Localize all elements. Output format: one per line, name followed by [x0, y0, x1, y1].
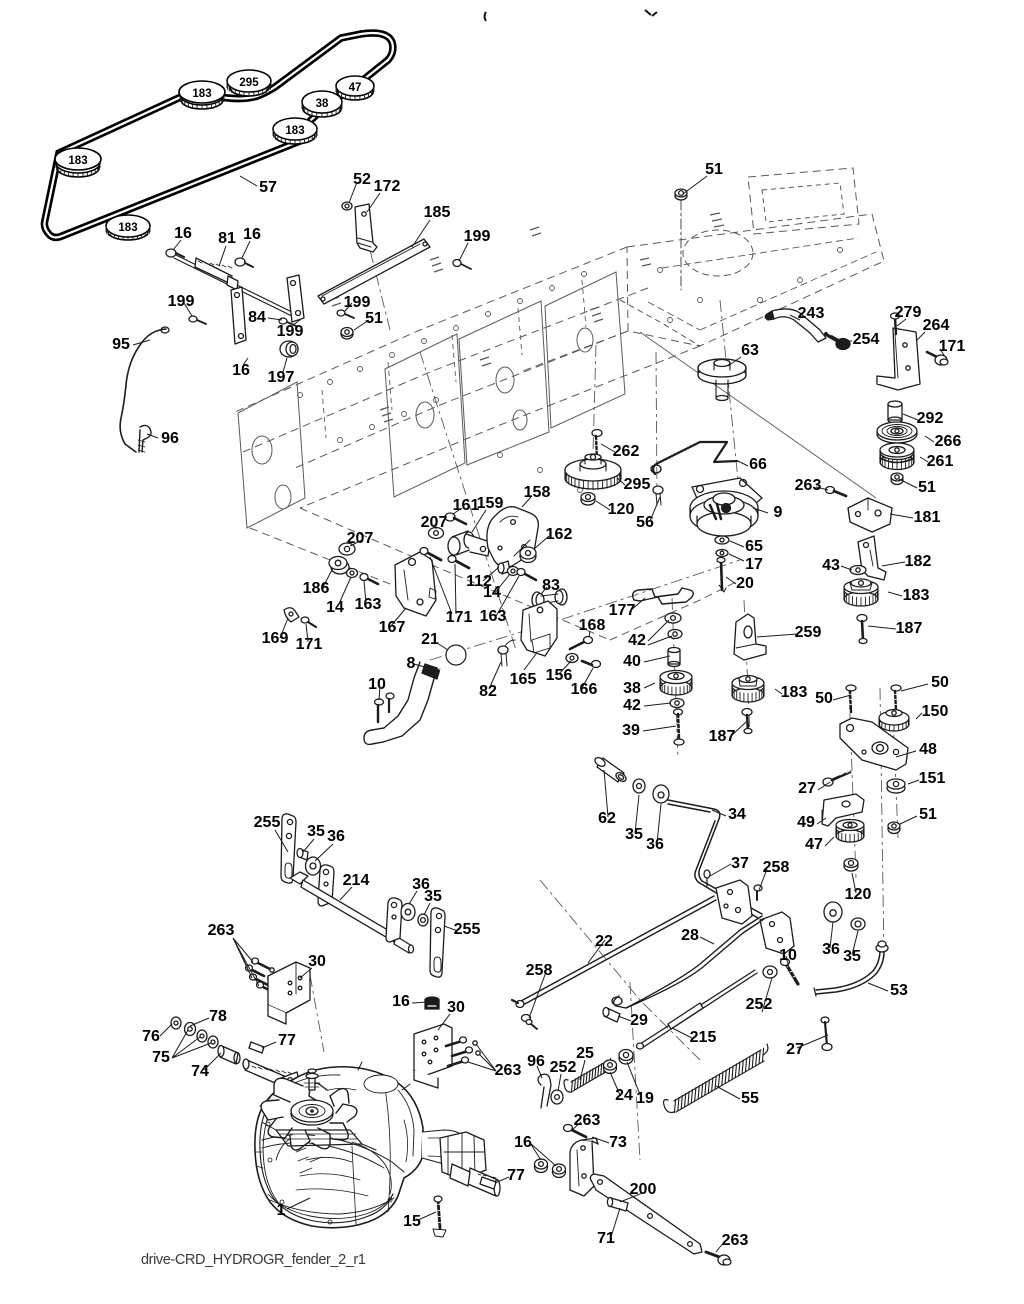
svg-text:261: 261	[927, 453, 954, 470]
svg-text:182: 182	[905, 553, 932, 570]
svg-text:159: 159	[477, 495, 504, 512]
svg-text:162: 162	[546, 526, 573, 543]
svg-text:76: 76	[142, 1028, 160, 1045]
svg-text:185: 185	[424, 204, 451, 221]
svg-text:258: 258	[763, 859, 790, 876]
svg-text:263: 263	[795, 477, 822, 494]
svg-text:151: 151	[919, 770, 946, 787]
svg-text:95: 95	[112, 336, 130, 353]
svg-text:199: 199	[277, 323, 304, 340]
svg-text:38: 38	[623, 680, 641, 697]
svg-text:50: 50	[931, 674, 949, 691]
svg-text:259: 259	[795, 624, 822, 641]
svg-text:171: 171	[446, 609, 473, 626]
svg-text:263: 263	[495, 1062, 522, 1079]
svg-text:215: 215	[690, 1029, 717, 1046]
svg-text:183: 183	[118, 222, 137, 234]
svg-text:51: 51	[365, 310, 383, 327]
svg-text:169: 169	[262, 630, 289, 647]
svg-text:29: 29	[630, 1012, 648, 1029]
svg-text:1: 1	[277, 1202, 286, 1219]
svg-text:50: 50	[815, 690, 833, 707]
svg-text:207: 207	[421, 514, 448, 531]
svg-text:10: 10	[368, 676, 386, 693]
svg-text:156: 156	[546, 667, 573, 684]
svg-text:255: 255	[454, 921, 481, 938]
svg-text:36: 36	[822, 941, 840, 958]
svg-text:163: 163	[480, 608, 507, 625]
svg-text:183: 183	[192, 88, 211, 100]
svg-text:254: 254	[853, 331, 880, 348]
svg-text:40: 40	[623, 653, 641, 670]
svg-text:77: 77	[278, 1032, 296, 1049]
svg-text:82: 82	[479, 683, 497, 700]
svg-text:38: 38	[316, 98, 329, 110]
svg-text:10: 10	[779, 947, 797, 964]
svg-text:252: 252	[550, 1059, 577, 1076]
svg-text:47: 47	[349, 82, 362, 94]
svg-text:49: 49	[797, 814, 815, 831]
svg-text:51: 51	[919, 806, 937, 823]
svg-text:81: 81	[218, 230, 236, 247]
svg-text:34: 34	[728, 806, 746, 823]
svg-text:96: 96	[161, 430, 179, 447]
svg-text:63: 63	[741, 342, 759, 359]
svg-text:262: 262	[613, 443, 640, 460]
svg-text:16: 16	[232, 362, 250, 379]
svg-text:66: 66	[749, 456, 767, 473]
svg-text:264: 264	[923, 317, 950, 334]
svg-text:16: 16	[243, 226, 261, 243]
svg-text:214: 214	[343, 872, 370, 889]
svg-text:14: 14	[483, 584, 501, 601]
svg-text:35: 35	[843, 948, 861, 965]
svg-text:207: 207	[347, 530, 374, 547]
svg-text:25: 25	[576, 1045, 594, 1062]
svg-text:51: 51	[918, 479, 936, 496]
svg-text:42: 42	[628, 632, 646, 649]
svg-text:28: 28	[681, 927, 699, 944]
svg-text:36: 36	[327, 828, 345, 845]
svg-text:43: 43	[822, 557, 840, 574]
svg-text:14: 14	[326, 599, 344, 616]
svg-text:168: 168	[579, 617, 606, 634]
svg-text:53: 53	[890, 982, 908, 999]
svg-text:30: 30	[447, 999, 465, 1016]
svg-text:27: 27	[786, 1041, 804, 1058]
svg-text:36: 36	[646, 836, 664, 853]
svg-text:200: 200	[630, 1181, 657, 1198]
svg-text:199: 199	[168, 293, 195, 310]
svg-text:20: 20	[736, 575, 754, 592]
svg-text:73: 73	[609, 1134, 627, 1151]
svg-text:48: 48	[919, 741, 937, 758]
svg-text:30: 30	[308, 953, 326, 970]
svg-text:83: 83	[542, 577, 560, 594]
svg-text:9: 9	[774, 504, 783, 521]
svg-text:65: 65	[745, 538, 763, 555]
svg-text:42: 42	[623, 697, 641, 714]
svg-text:120: 120	[608, 501, 635, 518]
svg-text:263: 263	[208, 922, 235, 939]
svg-text:27: 27	[798, 780, 816, 797]
svg-text:96: 96	[527, 1053, 545, 1070]
svg-text:183: 183	[68, 155, 87, 167]
svg-text:35: 35	[424, 888, 442, 905]
svg-text:292: 292	[917, 410, 944, 427]
svg-text:181: 181	[914, 509, 941, 526]
svg-text:16: 16	[392, 993, 410, 1010]
svg-text:62: 62	[598, 810, 616, 827]
svg-text:16: 16	[174, 225, 192, 242]
svg-text:187: 187	[896, 620, 923, 637]
svg-text:16: 16	[514, 1134, 532, 1151]
svg-text:177: 177	[609, 602, 636, 619]
svg-text:120: 120	[845, 886, 872, 903]
svg-text:75: 75	[152, 1049, 170, 1066]
svg-text:171: 171	[296, 636, 323, 653]
svg-text:263: 263	[722, 1232, 749, 1249]
svg-text:78: 78	[209, 1008, 227, 1025]
svg-text:158: 158	[524, 484, 551, 501]
svg-text:295: 295	[239, 77, 259, 89]
svg-text:258: 258	[526, 962, 553, 979]
svg-text:183: 183	[781, 684, 808, 701]
svg-text:183: 183	[285, 125, 304, 137]
svg-text:295: 295	[624, 476, 651, 493]
svg-text:197: 197	[268, 369, 295, 386]
svg-text:84: 84	[248, 309, 266, 326]
svg-text:199: 199	[464, 228, 491, 245]
svg-text:163: 163	[355, 596, 382, 613]
svg-text:172: 172	[374, 178, 401, 195]
svg-text:187: 187	[709, 728, 736, 745]
svg-text:243: 243	[798, 305, 825, 322]
svg-text:57: 57	[259, 179, 277, 196]
svg-text:drive-CRD_HYDROGR_fender_2_r1: drive-CRD_HYDROGR_fender_2_r1	[141, 1252, 366, 1268]
svg-text:263: 263	[574, 1112, 601, 1129]
svg-text:252: 252	[746, 996, 773, 1013]
svg-text:150: 150	[922, 703, 949, 720]
svg-text:255: 255	[254, 814, 281, 831]
svg-text:266: 266	[935, 433, 962, 450]
svg-text:35: 35	[625, 826, 643, 843]
svg-text:17: 17	[745, 556, 763, 573]
svg-text:183: 183	[903, 587, 930, 604]
svg-text:279: 279	[895, 304, 922, 321]
svg-text:39: 39	[622, 722, 640, 739]
svg-text:55: 55	[741, 1090, 759, 1107]
svg-text:15: 15	[403, 1213, 421, 1230]
svg-text:35: 35	[307, 823, 325, 840]
svg-text:167: 167	[379, 619, 406, 636]
svg-text:47: 47	[805, 836, 823, 853]
svg-text:8: 8	[407, 655, 416, 672]
svg-text:165: 165	[510, 671, 537, 688]
svg-text:37: 37	[731, 855, 749, 872]
svg-text:21: 21	[421, 631, 439, 648]
svg-text:74: 74	[191, 1063, 209, 1080]
svg-text:51: 51	[705, 161, 723, 178]
